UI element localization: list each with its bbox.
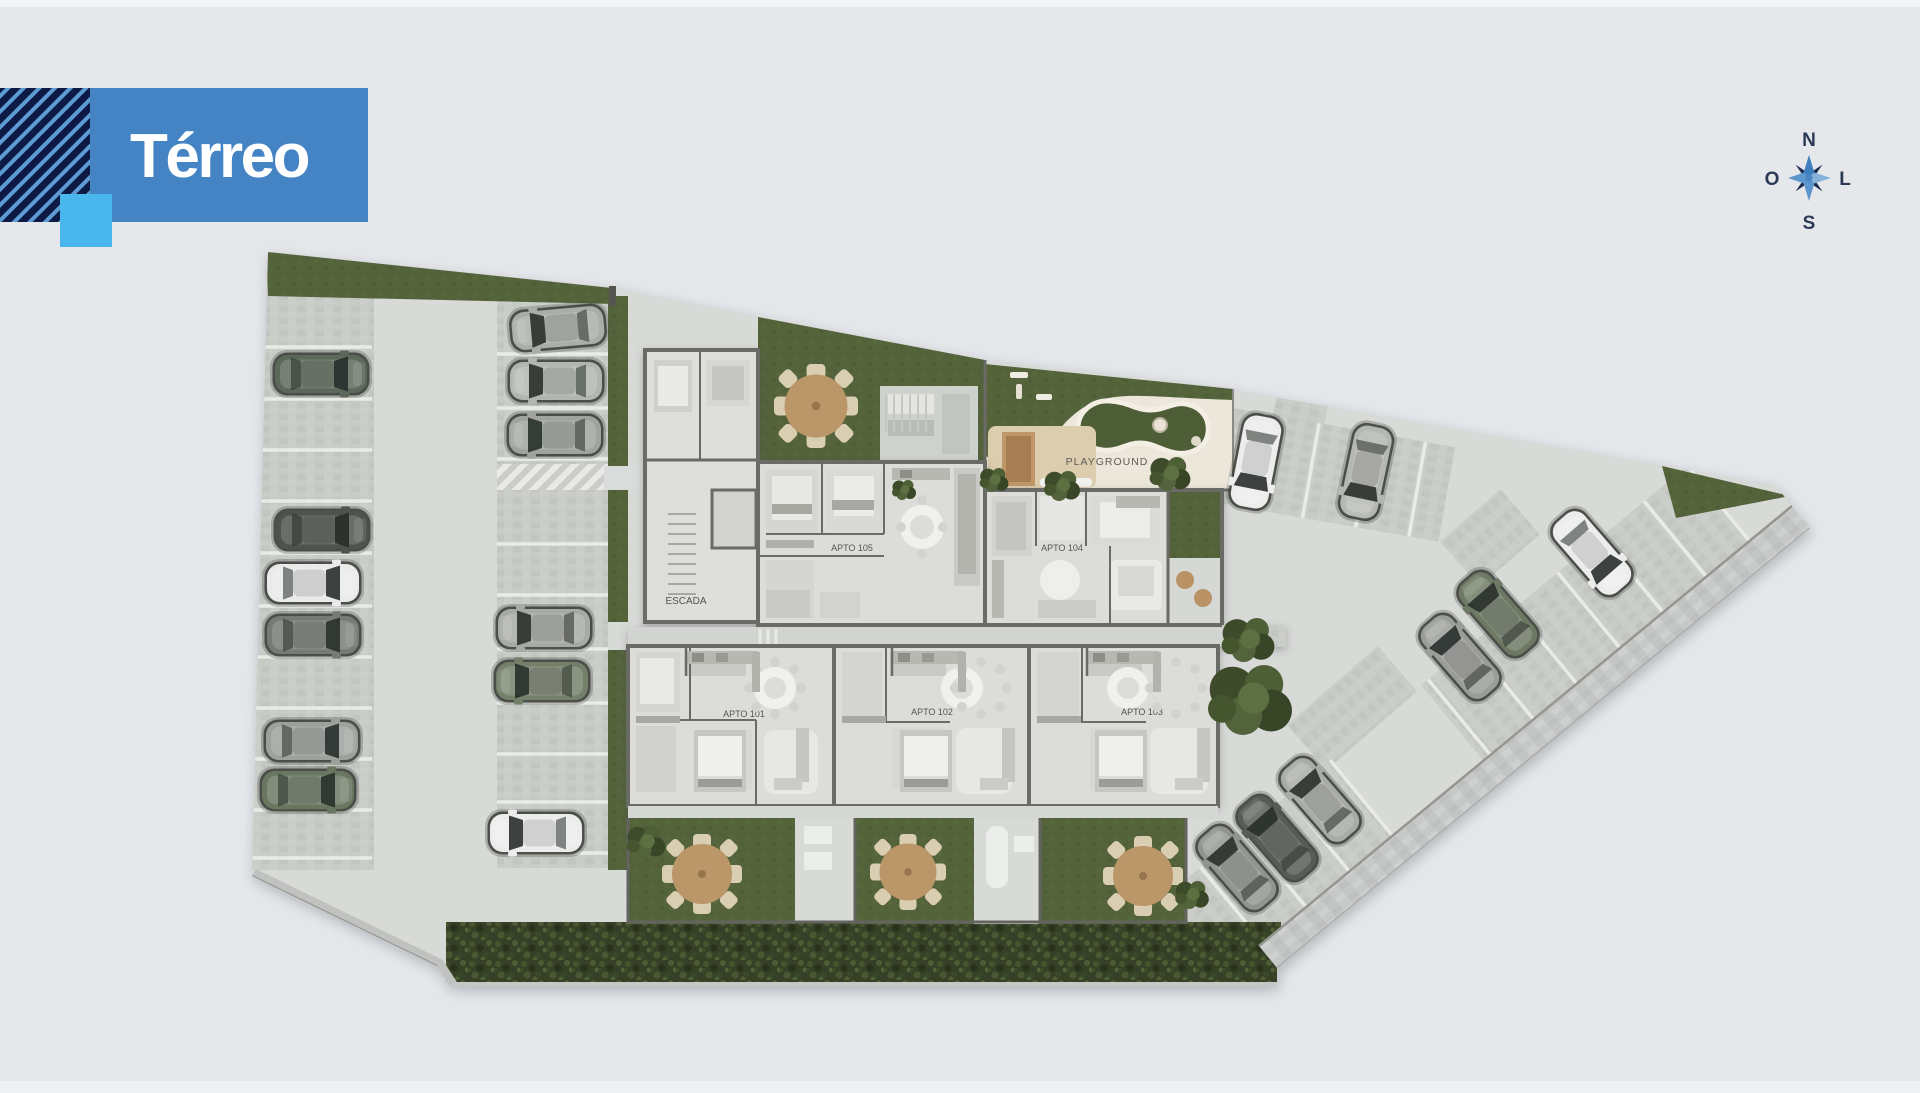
svg-text:O: O [1765,169,1780,190]
svg-text:ESCADA: ESCADA [665,596,706,607]
svg-text:APTO 102: APTO 102 [911,707,953,717]
svg-text:S: S [1803,213,1816,234]
svg-text:N: N [1802,130,1816,151]
svg-text:APTO 104: APTO 104 [1041,543,1083,553]
svg-text:Térreo: Térreo [130,122,309,191]
svg-text:PLAYGROUND: PLAYGROUND [1066,456,1149,468]
svg-text:APTO 105: APTO 105 [831,543,873,553]
svg-text:L: L [1839,169,1851,190]
